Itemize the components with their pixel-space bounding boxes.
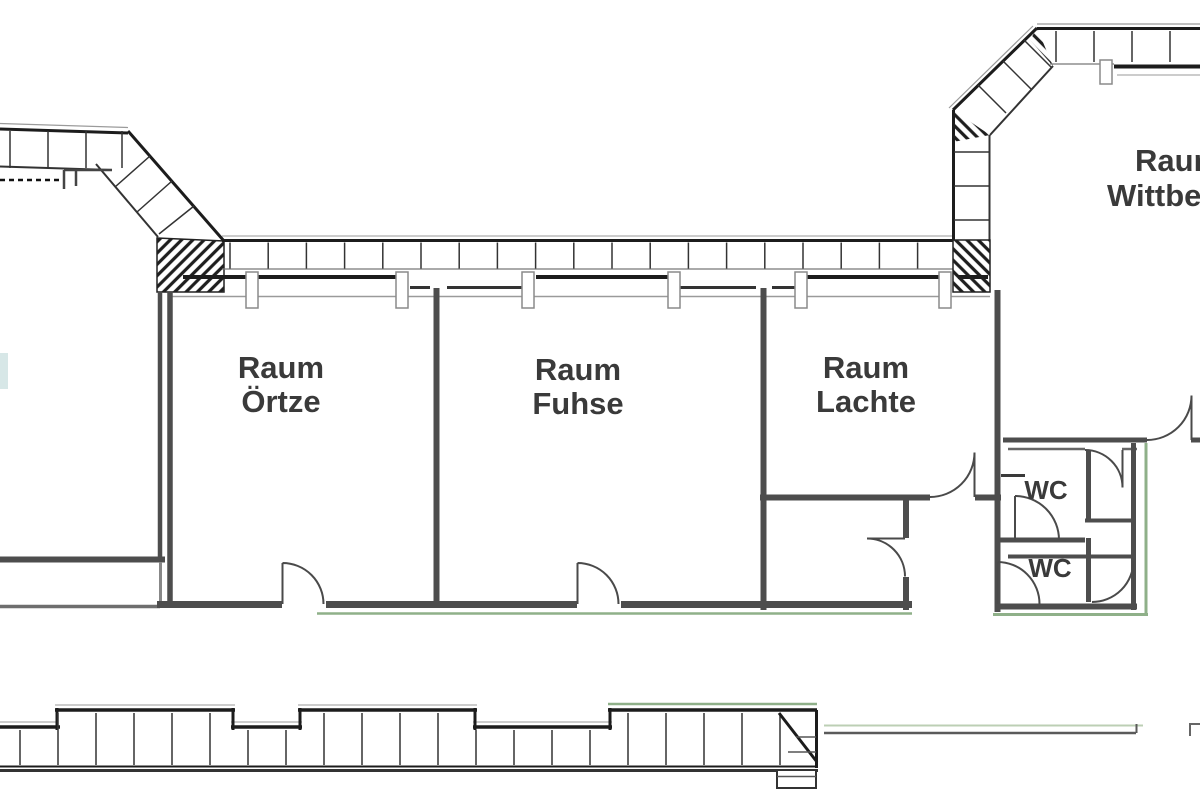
room-label-lachte-line2: Lachte (766, 385, 966, 419)
door-raum-fuhse (578, 563, 619, 604)
door-small-room (867, 539, 905, 577)
left-room-label-fragment (0, 353, 8, 389)
door-wc-lower-right (1092, 561, 1134, 603)
wall-elbow-hatched (953, 110, 990, 142)
window-band-bottom (0, 704, 1200, 788)
room-label-oertze: Raum Örtze (181, 351, 381, 419)
wall-pier-hatched-right (953, 240, 990, 292)
door-raum-lachte (930, 453, 975, 498)
door-corridor (1147, 396, 1192, 441)
wall-elbow-hatched-2 (1030, 28, 1053, 66)
window-mullions-top-right (1056, 31, 1170, 62)
window-mullions-top-left (10, 131, 122, 168)
room-label-wittbec-line2: Wittbec (1107, 179, 1200, 213)
room-label-fuhse-line1: Raum (478, 353, 678, 387)
band-end-appendix (777, 770, 816, 788)
room-label-wittbec-line1: Raum (1135, 144, 1200, 178)
window-band-middle (172, 236, 990, 308)
window-mullions-middle (230, 243, 918, 269)
window-sills (183, 277, 988, 288)
wc-label-lower: WC (1010, 555, 1090, 581)
room-label-oertze-line1: Raum (181, 351, 381, 385)
window-band-top-left (0, 124, 224, 293)
room-label-oertze-line2: Örtze (181, 385, 381, 419)
window-mullions-bottom (20, 713, 780, 765)
room-label-fuhse-line2: Fuhse (478, 387, 678, 421)
wall-fragment-bottom-right (1190, 724, 1200, 736)
window-pier-top-right (1100, 60, 1112, 84)
wc-label-upper: WC (1006, 477, 1086, 503)
room-label-lachte-line1: Raum (766, 351, 966, 385)
door-raum-oertze (283, 563, 324, 604)
floor-plan-page: Raum Örtze Raum Fuhse Raum Lachte Raum W… (0, 0, 1200, 800)
wall-pier-hatched-left (157, 238, 224, 292)
wc-block-walls (993, 443, 1148, 616)
room-label-lachte: Raum Lachte (766, 351, 966, 419)
room-label-fuhse: Raum Fuhse (478, 353, 678, 421)
